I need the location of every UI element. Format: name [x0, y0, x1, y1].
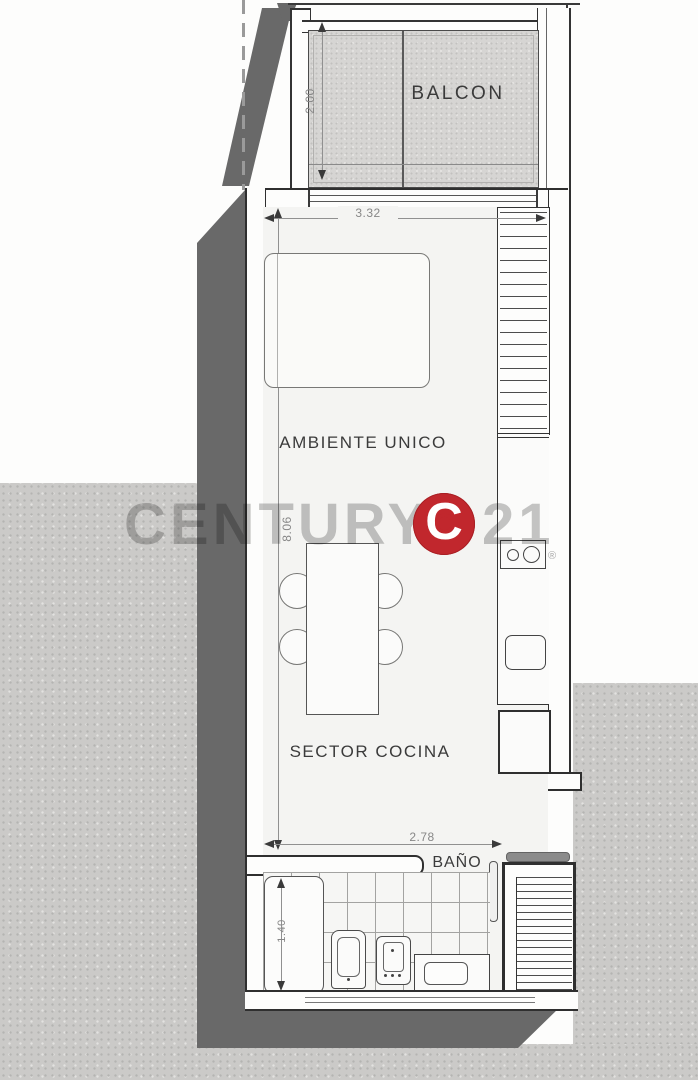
- door-leaf: [489, 861, 498, 922]
- dimension-bathroom-width: 1.40: [276, 911, 288, 951]
- watermark-brand-text: CENTURY: [124, 496, 430, 554]
- dining-table: [306, 543, 379, 715]
- balcony-inner-line: [309, 164, 538, 165]
- roof-edge-line: [288, 3, 580, 5]
- sliding-door-track: [308, 201, 537, 202]
- bathroom-label: BAÑO: [428, 854, 486, 872]
- wall-shadow-balcony: [222, 8, 292, 188]
- bathroom-lintel-bar: [506, 852, 570, 862]
- sink-icon: [505, 635, 546, 670]
- bidet-icon: [331, 930, 366, 989]
- vanity-sink-icon: [424, 962, 468, 985]
- century21-logo: C C: [413, 493, 475, 555]
- balcony-wall-right: [537, 8, 571, 190]
- kitchen-label: SECTOR COCINA: [288, 742, 452, 762]
- century21-logo-inner-letter: C: [434, 510, 454, 538]
- wall-right: [548, 190, 571, 772]
- dimension-room-width: 3.32: [338, 206, 398, 220]
- concrete-texture-left: [0, 483, 197, 1080]
- bed: [264, 253, 430, 388]
- dimension-line-room-width: [271, 218, 541, 219]
- watermark-number-text: 21: [482, 496, 555, 554]
- dimension-arrow: [264, 214, 274, 222]
- dimension-arrow: [318, 22, 326, 32]
- wall-bottom: [245, 990, 578, 1011]
- balcony-label: BALCON: [388, 83, 528, 105]
- fridge: [498, 710, 551, 774]
- property-line: [242, 0, 245, 190]
- dimension-arrow: [274, 840, 282, 850]
- dimension-arrow: [492, 840, 502, 848]
- concrete-texture-bottom: [0, 1044, 698, 1080]
- watermark-registered-mark: ®: [548, 550, 556, 562]
- main-room-label: AMBIENTE UNICO: [278, 433, 448, 453]
- vanity-counter: [414, 954, 490, 993]
- dimension-arrow: [536, 214, 546, 222]
- dimension-line-kitchen-width: [271, 844, 497, 845]
- dimension-arrow: [318, 170, 326, 180]
- dimension-arrow: [274, 208, 282, 218]
- dimension-arrow: [264, 840, 274, 848]
- sliding-door-track: [308, 195, 537, 196]
- balcony-area: [308, 30, 539, 188]
- floor-plan: BALCON 2.00 8.06: [0, 0, 698, 1080]
- toilet-icon: [376, 936, 411, 985]
- shower-hatch-block: [502, 862, 576, 998]
- dimension-balcony-depth: 2.00: [303, 81, 317, 121]
- concrete-texture-right: [573, 683, 698, 1080]
- shower-tray: [264, 876, 324, 994]
- dimension-line-balcony: [322, 26, 323, 178]
- dimension-kitchen-width: 2.78: [392, 830, 452, 844]
- dimension-arrow: [277, 878, 285, 888]
- wardrobe-hatch: [497, 207, 550, 435]
